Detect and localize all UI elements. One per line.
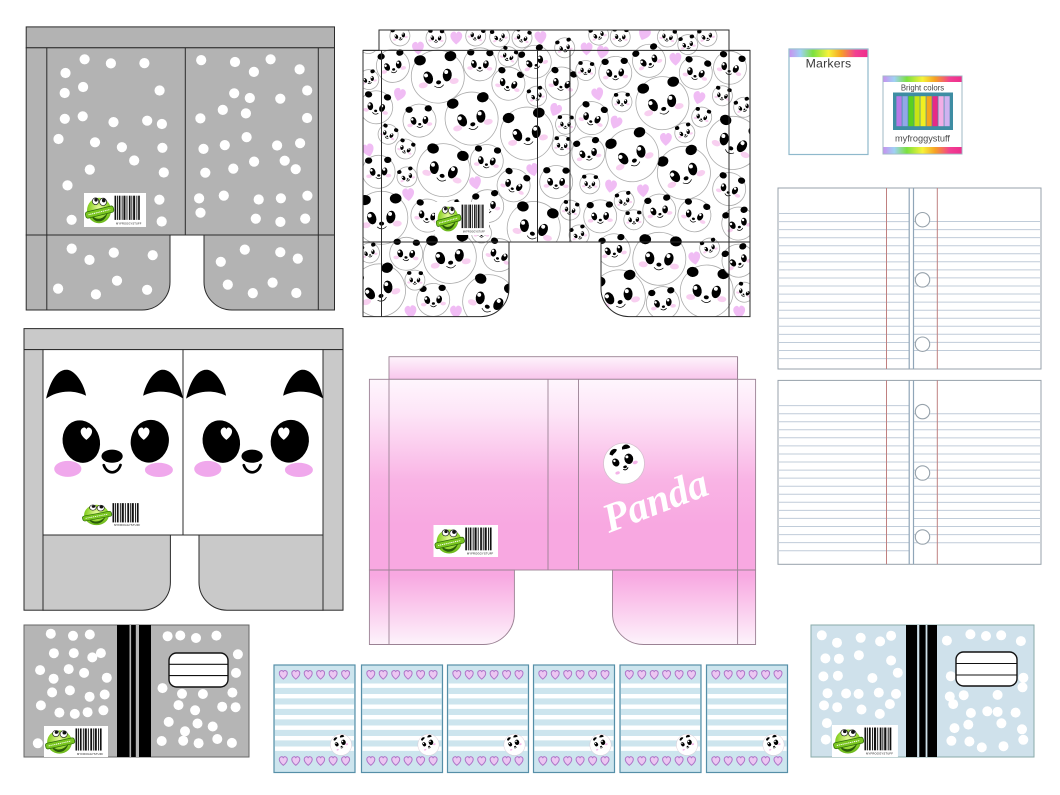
svg-text:Bright colors: Bright colors: [901, 84, 944, 93]
svg-text:myfroggystuff: myfroggystuff: [895, 134, 950, 144]
svg-text:Markers: Markers: [806, 57, 852, 71]
